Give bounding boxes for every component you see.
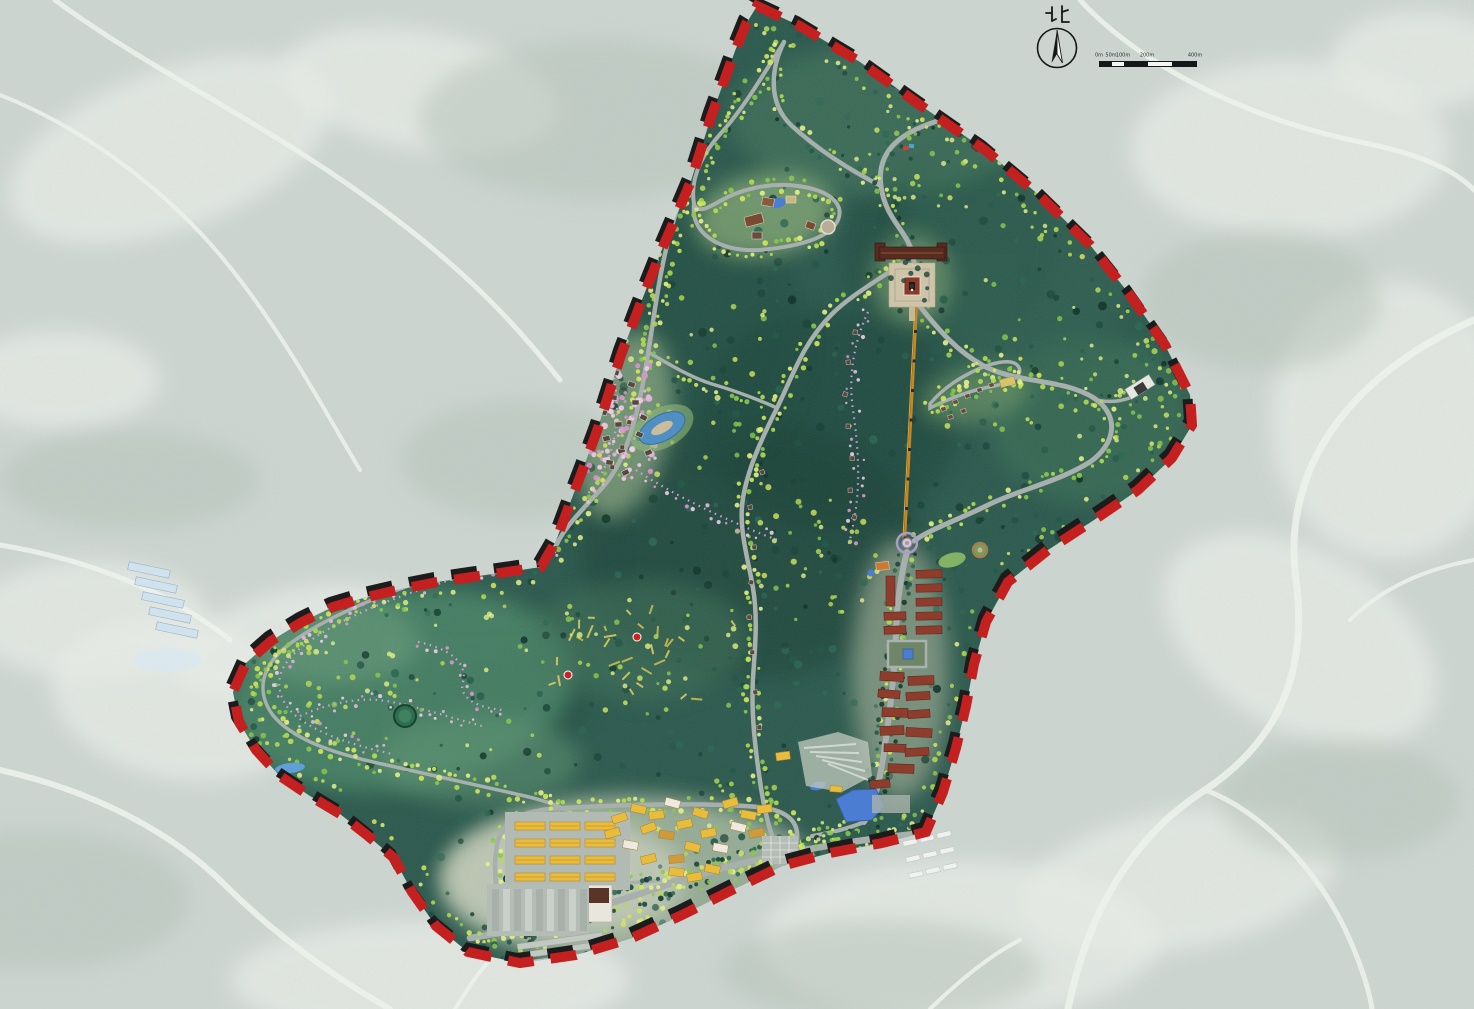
scale-bar: 0m 50m 100m 200m 400m xyxy=(1099,51,1199,69)
site-plan-map xyxy=(0,0,1474,1009)
scale-tick-4: 400m xyxy=(1188,52,1202,58)
north-arrow-glyph xyxy=(1033,4,1081,74)
scale-tick-2: 100m xyxy=(1116,52,1130,58)
master-plan-canvas: 北 0m 50m 100m 200m 400m xyxy=(0,0,1474,1009)
scale-bar-segments xyxy=(1099,61,1197,67)
north-label-glyph xyxy=(1046,6,1069,22)
north-arrow-icon: 北 xyxy=(1033,4,1081,74)
visitor-center xyxy=(585,885,612,922)
scale-tick-3: 200m xyxy=(1140,52,1154,58)
scale-tick-0: 0m xyxy=(1095,52,1103,58)
